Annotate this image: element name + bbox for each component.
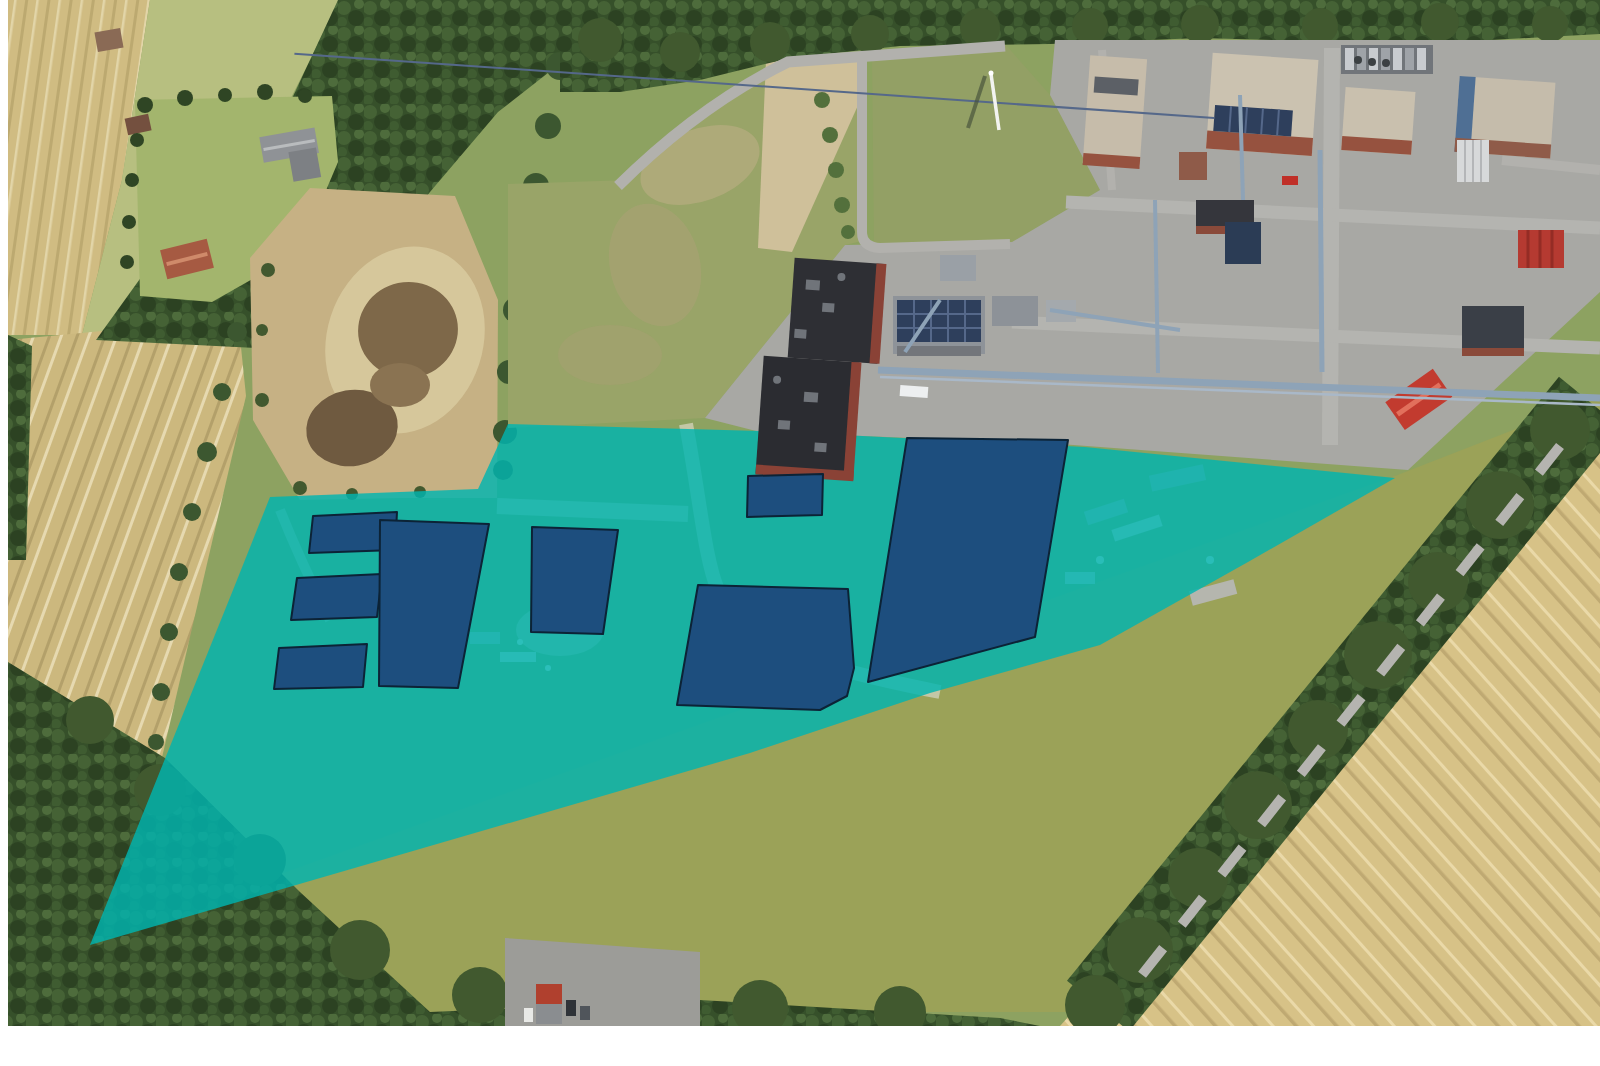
office-building-south-wing <box>756 356 860 480</box>
dark-building-southeast <box>1462 306 1524 354</box>
aerial-site-plan <box>0 0 1600 1066</box>
aerial-photo-canvas <box>0 0 1600 1066</box>
parking-clearing-south <box>505 938 700 1026</box>
dried-pond-field <box>250 188 509 500</box>
white-truck <box>900 385 929 398</box>
brick-box <box>1179 152 1207 180</box>
margin-bottom <box>0 1026 1600 1066</box>
footprint-2 <box>291 574 382 620</box>
shed-red-roof <box>536 984 562 1004</box>
red-car <box>1282 176 1298 185</box>
office-building-north-wing <box>788 258 885 364</box>
navy-building <box>1225 222 1261 264</box>
footprint-6 <box>747 474 823 517</box>
solar-roof-array <box>1213 105 1293 136</box>
footprint-5 <box>531 527 618 634</box>
farm-house-grey-wing <box>288 147 321 181</box>
footprint-8 <box>677 585 854 710</box>
footprint-3 <box>274 644 367 689</box>
margin-left <box>0 0 8 1066</box>
